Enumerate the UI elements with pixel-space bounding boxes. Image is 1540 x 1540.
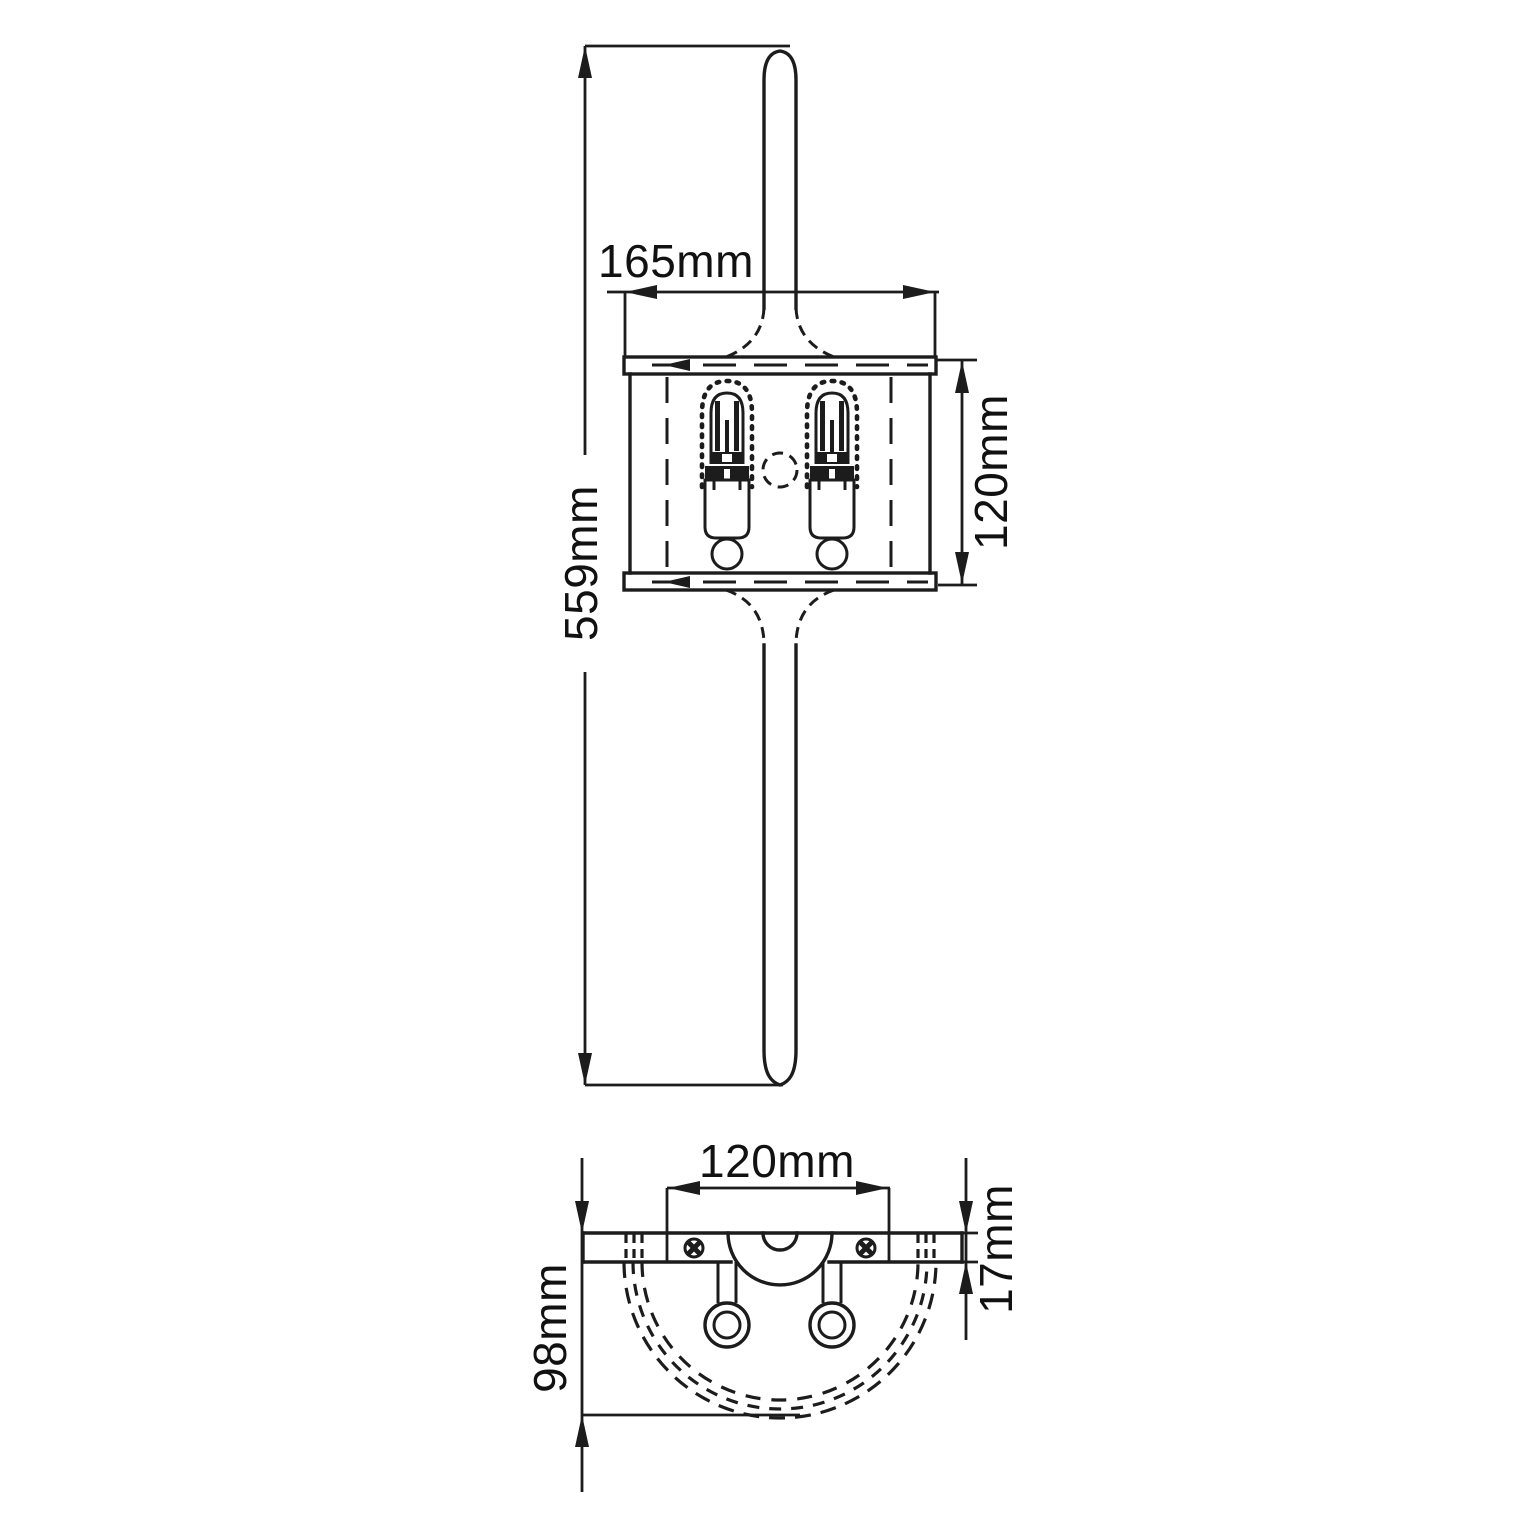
lamp-ceramic-base	[705, 480, 749, 538]
pole-flare-top-left	[726, 308, 764, 357]
arrow-right-icon	[856, 1181, 888, 1195]
lampholder-left	[705, 1262, 749, 1347]
pole-lower	[764, 645, 796, 1085]
arrow-left-icon	[625, 285, 657, 299]
holder-ring-outer	[810, 1303, 854, 1347]
lamp-pin-loop	[817, 539, 847, 569]
pole-flare-top-right	[796, 308, 834, 357]
label-plate-thickness: 17mm	[970, 1184, 1022, 1314]
wall-light-dimension-drawing: 559mm	[0, 0, 1540, 1540]
dim-overall-height: 559mm	[555, 46, 790, 1085]
lamp-right	[807, 381, 857, 569]
dim-plate-thickness: 17mm	[958, 1158, 1022, 1340]
lamp-filament-rod	[715, 401, 720, 451]
pole-upper	[764, 51, 796, 308]
pole-boss	[728, 1233, 832, 1285]
lamp-pin-loop	[712, 539, 742, 569]
boss-outer-arc	[728, 1233, 832, 1285]
lamp-filament-rod	[839, 401, 844, 451]
label-shade-height: 120mm	[965, 394, 1017, 550]
arrow-right-icon	[903, 285, 935, 299]
pole-flare-bottom-left	[726, 590, 764, 645]
rim-screw-bottom	[664, 576, 690, 588]
dim-shade-height: 120mm	[936, 360, 1017, 585]
boss-inner-arc	[763, 1233, 797, 1250]
shade-front	[624, 357, 936, 590]
lamp-filament-rod	[820, 401, 825, 451]
lamp-base-band-gap	[829, 469, 835, 480]
lamp-collar-gap	[827, 454, 837, 462]
lamp-filament-rod	[734, 401, 739, 451]
dim-depth: 98mm	[524, 1158, 800, 1492]
diffuser-arc-inner	[642, 1262, 918, 1400]
arrow-left-icon	[668, 1181, 700, 1195]
arrow-up-icon	[578, 46, 592, 78]
dim-shade-width: 165mm	[598, 235, 939, 356]
lamp-left	[702, 381, 752, 569]
screw-right	[857, 1239, 875, 1257]
holder-ring-inner	[714, 1312, 740, 1338]
arrow-down-icon	[955, 552, 969, 584]
label-shade-width: 165mm	[598, 235, 754, 287]
lamp-collar-gap	[722, 454, 732, 462]
label-fixing-width: 120mm	[699, 1135, 855, 1187]
screw-left	[685, 1239, 703, 1257]
bottom-view: 120mm 98mm 17mm	[524, 1135, 1022, 1492]
lamp-base-band-gap	[724, 469, 730, 480]
label-overall-height: 559mm	[555, 485, 607, 641]
pole-flare-bottom-right	[796, 590, 834, 645]
holder-ring-inner	[819, 1312, 845, 1338]
mount-hole	[763, 453, 797, 487]
technical-drawing-page: 559mm	[0, 0, 1540, 1540]
lampholder-right	[810, 1262, 854, 1347]
wall-pole	[726, 51, 834, 1085]
lamp-ceramic-base	[810, 480, 854, 538]
arrow-down-icon	[575, 1201, 589, 1233]
arrow-up-icon	[955, 361, 969, 393]
arrow-up-icon	[575, 1415, 589, 1447]
front-view: 559mm	[555, 46, 1017, 1085]
rim-screw-top	[664, 359, 690, 371]
holder-ring-outer	[705, 1303, 749, 1347]
label-depth: 98mm	[524, 1263, 576, 1393]
arrow-down-icon	[578, 1053, 592, 1085]
